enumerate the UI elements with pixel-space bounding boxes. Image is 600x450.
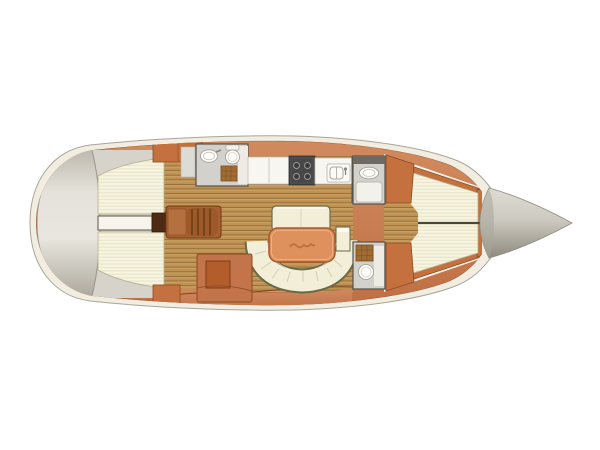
bow-cone [480, 188, 572, 258]
forward-head-shower [353, 156, 385, 204]
toilet-icon [359, 265, 374, 280]
yacht-floor-plan [0, 0, 600, 450]
floor-plan-canvas [0, 0, 600, 450]
shower-grate-icon [356, 245, 373, 261]
companionway-steps [166, 206, 221, 238]
forward-corridor [384, 203, 418, 243]
shower-grate-icon [221, 166, 237, 181]
forward-head-wc [353, 242, 385, 289]
nav-station [197, 254, 252, 302]
galley [248, 156, 352, 185]
aft-aisle [98, 216, 152, 230]
engine-compartment [152, 213, 167, 232]
stove-icon [289, 156, 315, 185]
salon-table [269, 228, 335, 262]
shower-tray [356, 182, 382, 202]
toilet-icon [226, 145, 240, 164]
washbasin-icon [360, 167, 379, 179]
aft-head-door [181, 147, 195, 177]
nav-seat [206, 261, 230, 288]
galley-sink-icon [327, 164, 350, 182]
